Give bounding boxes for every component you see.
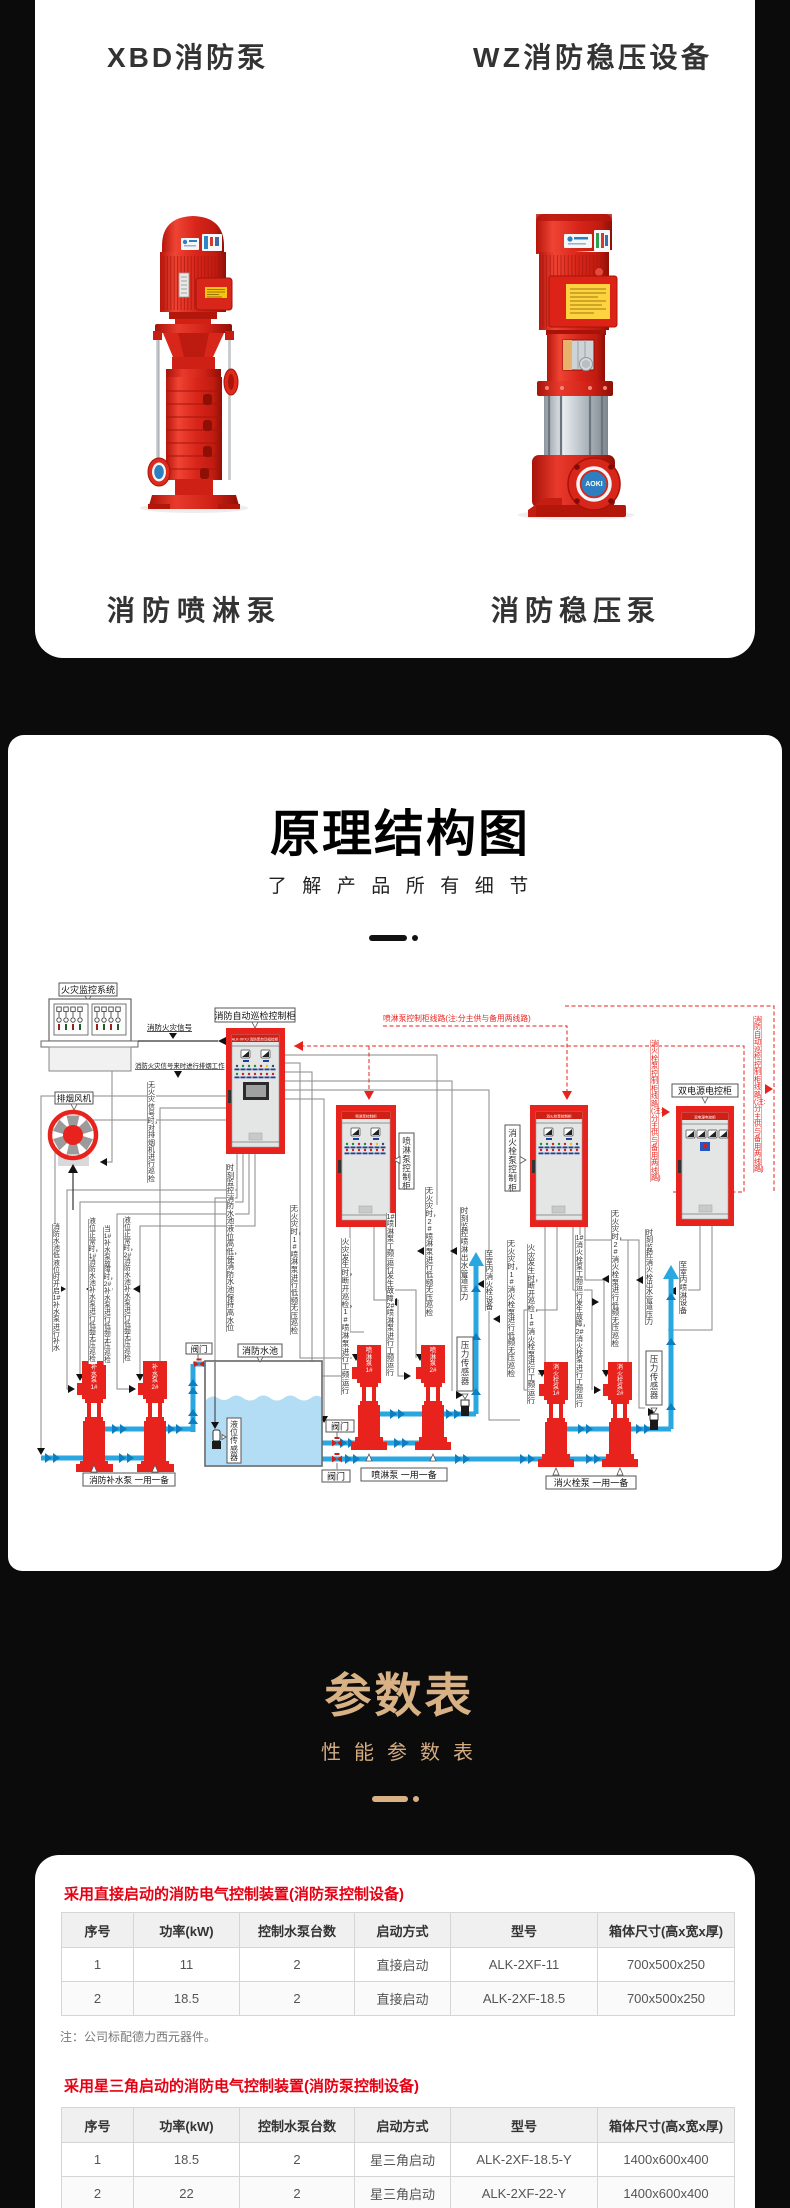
svg-text:阀门: 阀门	[191, 1344, 208, 1354]
svg-text:火灾监控系统: 火灾监控系统	[61, 984, 115, 995]
svg-text:消防火灾信号: 消防火灾信号	[147, 1022, 192, 1032]
svg-text:喷淋泵 一用一备: 喷淋泵 一用一备	[371, 1469, 437, 1480]
svg-text:ALK-XFXJ 消防泵自动巡检柜: ALK-XFXJ 消防泵自动巡检柜	[232, 1037, 279, 1042]
svg-text:喷淋泵控制柜线路(注:分主供与备用两线路): 喷淋泵控制柜线路(注:分主供与备用两线路)	[383, 1013, 531, 1023]
svg-text:排烟风机: 排烟风机	[57, 1093, 92, 1104]
svg-text:消防补水泵 一用一备: 消防补水泵 一用一备	[89, 1474, 169, 1485]
svg-text:双电源电控柜: 双电源电控柜	[694, 1115, 716, 1120]
svg-text:喷淋泵控制柜: 喷淋泵控制柜	[355, 1114, 377, 1119]
svg-text:消防自动巡检控制柜: 消防自动巡检控制柜	[214, 1010, 295, 1021]
svg-text:消火栓泵 一用一备: 消火栓泵 一用一备	[554, 1477, 629, 1488]
svg-text:阀门: 阀门	[327, 1471, 345, 1482]
svg-text:消火栓泵控制柜: 消火栓泵控制柜	[546, 1114, 572, 1119]
svg-text:阀门: 阀门	[331, 1421, 349, 1432]
svg-text:消防火灾信号来时进行排烟工作: 消防火灾信号来时进行排烟工作	[135, 1061, 225, 1070]
svg-text:AOKI: AOKI	[585, 481, 603, 488]
svg-text:双电源电控柜: 双电源电控柜	[678, 1085, 732, 1096]
svg-text:消防水池: 消防水池	[242, 1345, 278, 1356]
